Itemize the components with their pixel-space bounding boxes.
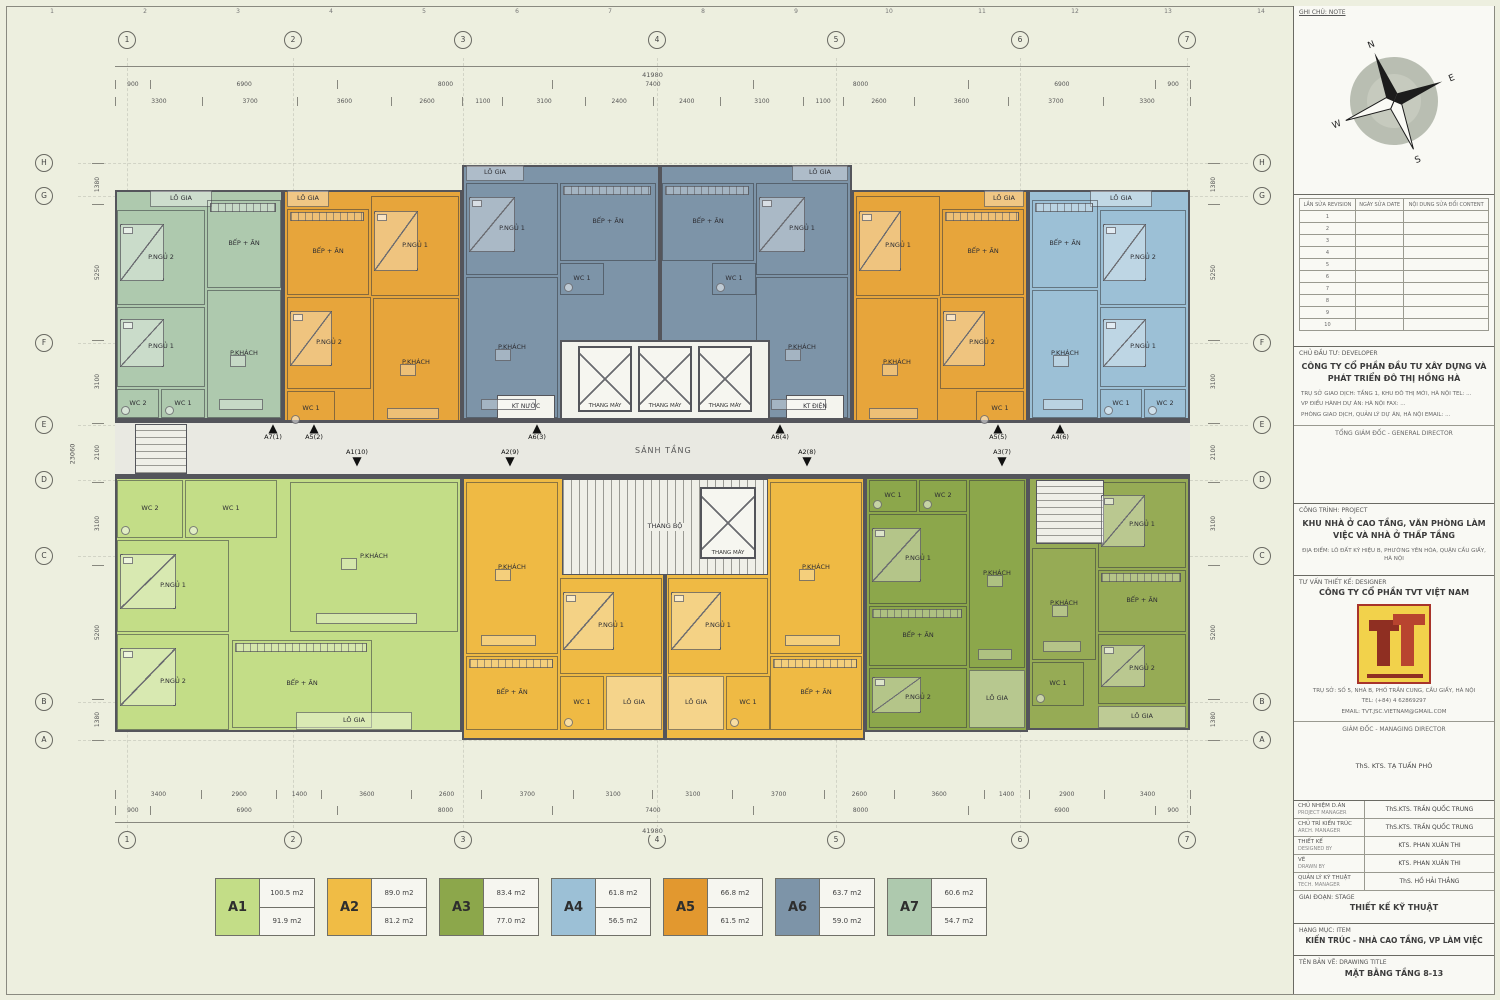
dimension-column-left: 1380525031002100310052001380 <box>92 163 104 741</box>
room-bed: P.NGỦ 2 <box>940 297 1024 389</box>
revision-row: 3 <box>1300 235 1489 247</box>
unit-entrance-arrow: ▲A7(1) <box>264 423 282 441</box>
dimension-segment: 3300 <box>1103 97 1190 106</box>
grid-bubble-column: 2 <box>284 31 302 49</box>
pillow-icon <box>472 200 482 207</box>
room-kitchen: BẾP + ĂN <box>869 606 967 666</box>
legend-area-top: 63.7 m2 <box>820 879 874 908</box>
grid-bubble-row: G <box>35 187 53 205</box>
ruler-number: 1 <box>50 8 54 16</box>
pillow-icon <box>875 530 885 537</box>
designer-label: TƯ VẤN THIẾT KẾ: DESIGNER <box>1294 576 1494 586</box>
sofa-icon <box>1043 641 1081 652</box>
room-label: BẾP + ĂN <box>692 218 723 225</box>
room-kitchen: BẾP + ĂN <box>287 209 369 295</box>
kitchen-counter-icon <box>665 186 749 195</box>
toilet-icon <box>121 406 130 415</box>
legend-item-A1: A1100.5 m291.9 m2 <box>215 878 315 936</box>
toilet-icon <box>564 718 573 727</box>
room-bed: P.NGỦ 2 <box>117 210 205 305</box>
legend-areas: 83.4 m277.0 m2 <box>484 879 538 935</box>
kitchen-counter-icon <box>290 212 364 221</box>
room-label: P.KHÁCH <box>802 564 830 571</box>
dimension-segment: 6900 <box>150 80 338 89</box>
electrical-shaft-label: KT ĐIỆN <box>803 404 827 411</box>
developer-block: CHỦ ĐẦU TƯ: DEVELOPER CÔNG TY CỔ PHẦN ĐẦ… <box>1294 347 1494 504</box>
room-label: P.KHÁCH <box>360 553 388 560</box>
revision-row: 8 <box>1300 295 1489 307</box>
room-label: P.NGỦ 2 <box>905 694 931 701</box>
room-label: P.KHÁCH <box>230 350 258 357</box>
dimension-segment-vertical: 3100 <box>1208 482 1220 565</box>
room-kitchen: BẾP + ĂN <box>1032 200 1098 288</box>
legend-area-top: 100.5 m2 <box>260 879 314 908</box>
dimension-segment: 3600 <box>297 97 390 106</box>
room-label: WC 1 <box>222 505 239 512</box>
dimension-segment-vertical: 5200 <box>1208 565 1220 699</box>
elevator-2: THANG MÁY <box>638 346 692 412</box>
pillow-icon <box>123 651 133 658</box>
room-label: WC 1 <box>991 405 1008 412</box>
ruler-number: 13 <box>1164 8 1172 16</box>
grid-bubble-column: 7 <box>1178 831 1196 849</box>
dimension-segment: 8000 <box>337 806 552 815</box>
legend-swatch: A5 <box>664 879 708 935</box>
toilet-icon <box>564 283 573 292</box>
dimension-segment-vertical: 3100 <box>1208 340 1220 423</box>
room-bed: P.NGỦ 1 <box>560 578 662 674</box>
room-loggia: LÔ GIA <box>466 165 524 181</box>
revision-row: 10 <box>1300 319 1489 331</box>
title-block: GHI CHÚ: NOTE N E S W LẦN SỬA REVISI <box>1293 6 1494 994</box>
room-loggia: LÔ GIA <box>969 670 1025 728</box>
dimension-row-segments-bottom: 90069008000740080006900900 <box>115 806 1191 815</box>
room-label: P.NGỦ 1 <box>148 343 174 350</box>
room-bed: P.NGỦ 1 <box>668 578 768 674</box>
grid-bubble-column: 1 <box>118 831 136 849</box>
pillow-icon <box>1104 647 1114 654</box>
kitchen-counter-icon <box>563 186 651 195</box>
elevator-label: THANG MÁY <box>708 403 743 409</box>
pillow-icon <box>123 227 133 234</box>
water-shaft-label: KT NƯỚC <box>512 404 540 411</box>
personnel-row: QUẢN LÝ KỸ THUẬTTECH. MANAGERThS. HỒ HẢI… <box>1294 873 1494 891</box>
dimension-segment: 900 <box>115 80 150 89</box>
room-wc: WC 1 <box>185 480 277 538</box>
grid-bubble-row: B <box>35 693 53 711</box>
dimension-segment-vertical: 1380 <box>1208 699 1220 740</box>
stage-label: GIAI ĐOẠN: STAGE <box>1294 891 1494 901</box>
drawing-title-block: TÊN BẢN VẼ: DRAWING TITLE MẶT BẰNG TẦNG … <box>1294 956 1494 994</box>
room-wc: WC 1 <box>1032 662 1084 706</box>
sofa-icon <box>869 408 918 419</box>
ruler-number: 9 <box>794 8 798 16</box>
room-label: P.NGỦ 1 <box>499 225 525 232</box>
room-label: LÔ GIA <box>484 169 506 176</box>
room-wc: WC 2 <box>1144 389 1186 418</box>
room-label: BẾP + ĂN <box>286 680 317 687</box>
room-bed: P.NGỦ 1 <box>466 183 558 275</box>
revision-row: 7 <box>1300 283 1489 295</box>
personnel-row: VẼDRAWN BYKTS. PHAN XUÂN THI <box>1294 855 1494 873</box>
room-sofa: P.KHÁCH <box>1032 548 1096 660</box>
designer-logo <box>1357 604 1431 684</box>
unit-code-label: A5(2) <box>305 433 323 441</box>
unit-entrance-arrow: ▲A5(5) <box>989 423 1007 441</box>
legend-area-bottom: 59.0 m2 <box>820 908 874 936</box>
ruler-number: 10 <box>885 8 893 16</box>
dimension-segment: 3100 <box>502 97 585 106</box>
room-label: WC 2 <box>141 505 158 512</box>
dimension-segment: 3100 <box>720 97 803 106</box>
corridor-label: SẢNH TẦNG <box>635 447 692 456</box>
room-label: P.NGỦ 1 <box>905 555 931 562</box>
elevator-label: THANG MÁY <box>711 550 746 556</box>
revision-header: NGÀY SỬA DATE <box>1355 199 1403 211</box>
legend-item-A7: A760.6 m254.7 m2 <box>887 878 987 936</box>
legend-area-bottom: 61.5 m2 <box>708 908 762 936</box>
room-bed: P.NGỦ 1 <box>1100 307 1186 387</box>
toilet-icon <box>923 500 932 509</box>
room-label: P.NGỦ 2 <box>969 339 995 346</box>
room-kitchen: BẾP + ĂN <box>560 183 656 261</box>
room-sofa: P.KHÁCH <box>466 482 558 654</box>
room-label: P.KHÁCH <box>402 359 430 366</box>
room-label: WC 1 <box>573 275 590 282</box>
room-label: P.KHÁCH <box>1051 350 1079 357</box>
kitchen-counter-icon <box>1035 203 1093 212</box>
managing-director-label: GIÁM ĐỐC - MANAGING DIRECTOR <box>1294 721 1494 735</box>
kitchen-counter-icon <box>872 609 962 618</box>
legend-areas: 61.8 m256.5 m2 <box>596 879 650 935</box>
unit-entrance-arrow: ▲A5(2) <box>305 423 323 441</box>
room-label: P.NGỦ 1 <box>160 582 186 589</box>
room-label: P.NGỦ 1 <box>1129 521 1155 528</box>
room-label: P.KHÁCH <box>788 344 816 351</box>
kitchen-counter-icon <box>1101 573 1181 582</box>
room-bed: P.NGỦ 1 <box>371 196 459 296</box>
room-loggia: LÔ GIA <box>984 190 1024 207</box>
room-label: P.NGỦ 1 <box>1130 343 1156 350</box>
room-label: WC 1 <box>1049 680 1066 687</box>
grid-line-horizontal <box>78 163 1248 164</box>
legend-area-bottom: 77.0 m2 <box>484 908 538 936</box>
legend-item-A2: A289.0 m281.2 m2 <box>327 878 427 936</box>
svg-text:E: E <box>1447 73 1456 85</box>
room-sofa: P.KHÁCH <box>290 482 458 632</box>
personnel-row: THIẾT KẾDESIGNED BYKTS. PHAN XUÂN THI <box>1294 837 1494 855</box>
kitchen-counter-icon <box>210 203 276 212</box>
dimension-segment: 1100 <box>803 97 843 106</box>
pillow-icon <box>862 214 872 221</box>
arrow-down-icon: ▼ <box>798 456 816 466</box>
room-label: WC 2 <box>934 492 951 499</box>
unit-entrance-arrow: A1(10)▼ <box>346 448 368 466</box>
toilet-icon <box>873 500 882 509</box>
room-label: BẾP + ĂN <box>312 248 343 255</box>
ruler-number: 5 <box>422 8 426 16</box>
designer-name: CÔNG TY CỔ PHẦN TVT VIỆT NAM <box>1294 586 1494 600</box>
kitchen-counter-icon <box>945 212 1019 221</box>
unit-entrance-arrow: ▲A6(3) <box>528 423 546 441</box>
room-wc: WC 1 <box>560 263 604 295</box>
dimension-segment: 900 <box>1155 80 1190 89</box>
toilet-icon <box>1104 406 1113 415</box>
dimension-segment: 900 <box>115 806 150 815</box>
room-kitchen: BẾP + ĂN <box>770 656 862 730</box>
grid-bubble-column: 5 <box>827 831 845 849</box>
toilet-icon <box>716 283 725 292</box>
ruler-number: 6 <box>515 8 519 16</box>
stair-label: THANG BỘ <box>646 523 685 530</box>
room-label: P.NGỦ 1 <box>402 242 428 249</box>
svg-text:N: N <box>1367 39 1377 51</box>
room-sofa: P.KHÁCH <box>770 482 862 654</box>
room-label: P.NGỦ 1 <box>789 225 815 232</box>
room-label: WC 1 <box>725 275 742 282</box>
legend-area-top: 89.0 m2 <box>372 879 426 908</box>
dimension-segment: 1400 <box>276 790 321 799</box>
grid-bubble-column: 6 <box>1011 31 1029 49</box>
dimension-row-fine-top: 3300370036002600110031002400240031001100… <box>115 97 1191 106</box>
legend-swatch: A3 <box>440 879 484 935</box>
item-label: HẠNG MỤC: ITEM <box>1294 924 1494 934</box>
pillow-icon <box>946 314 956 321</box>
designer-info-line: EMAIL: TVT.JSC.VIETNAM@GMAIL.COM <box>1294 707 1494 717</box>
toilet-icon <box>1036 694 1045 703</box>
pillow-icon <box>123 557 133 564</box>
room-sofa: P.KHÁCH <box>373 298 459 427</box>
legend-area-bottom: 54.7 m2 <box>932 908 986 936</box>
room-wc: WC 1 <box>1100 389 1142 418</box>
general-director-label: TỔNG GIÁM ĐỐC - GENERAL DIRECTOR <box>1294 425 1494 439</box>
designer-info-line: TEL: (+84) 4 62869297 <box>1294 696 1494 706</box>
dimension-row-segments-top: 90069008000740080006900900 <box>115 80 1191 89</box>
grid-bubble-column: 1 <box>118 31 136 49</box>
pillow-icon <box>762 200 772 207</box>
revision-row: 6 <box>1300 271 1489 283</box>
elevator-4: THANG MÁY <box>700 487 756 559</box>
ruler-number: 14 <box>1257 8 1265 16</box>
room-bed: P.NGỦ 1 <box>117 540 229 632</box>
room-label: LÔ GIA <box>685 699 707 706</box>
dimension-segment-vertical: 2100 <box>1208 423 1220 482</box>
room-bed: P.NGỦ 1 <box>117 307 205 387</box>
grid-bubble-row: C <box>35 547 53 565</box>
room-bed: P.NGỦ 1 <box>1098 482 1186 568</box>
unit-code-label: A6(4) <box>771 433 789 441</box>
room-label: P.NGỦ 2 <box>1129 665 1155 672</box>
legend-area-bottom: 56.5 m2 <box>596 908 650 936</box>
table-icon <box>341 558 357 570</box>
sofa-icon <box>1043 399 1083 410</box>
legend-swatch: A4 <box>552 879 596 935</box>
room-sofa: P.KHÁCH <box>969 480 1025 668</box>
kitchen-counter-icon <box>469 659 553 668</box>
dimension-segment: 7400 <box>552 80 752 89</box>
dimension-segment: 3700 <box>202 97 297 106</box>
grid-bubble-row: E <box>1253 416 1271 434</box>
grid-bubble-row: F <box>1253 334 1271 352</box>
dimension-segment: 1100 <box>462 97 502 106</box>
room-label: LÔ GIA <box>993 195 1015 202</box>
room-label: LÔ GIA <box>297 195 319 202</box>
room-wc: WC 1 <box>560 676 604 730</box>
room-wc: WC 2 <box>117 480 183 538</box>
toilet-icon <box>121 526 130 535</box>
room-wc: WC 2 <box>117 389 159 418</box>
dimension-segment: 6900 <box>150 806 338 815</box>
unit-entrance-arrow: A2(8)▼ <box>798 448 816 466</box>
room-wc: WC 1 <box>726 676 770 730</box>
room-label: P.NGỦ 1 <box>885 242 911 249</box>
room-label: P.NGỦ 1 <box>705 622 731 629</box>
legend-areas: 100.5 m291.9 m2 <box>260 879 314 935</box>
developer-name: CÔNG TY CỔ PHẦN ĐẦU TƯ XÂY DỰNG VÀ PHÁT … <box>1294 357 1494 389</box>
side-stair-left <box>135 424 187 474</box>
pillow-icon <box>1106 322 1116 329</box>
revision-row: 4 <box>1300 247 1489 259</box>
grid-bubble-row: D <box>35 471 53 489</box>
pillow-icon <box>1104 498 1114 505</box>
personnel-row: CHỦ NHIỆM D.ÁNPROJECT MANAGERThS.KTS. TR… <box>1294 801 1494 819</box>
revision-row: 5 <box>1300 259 1489 271</box>
pillow-icon <box>566 595 576 602</box>
dimension-segment: 2900 <box>201 790 277 799</box>
grid-line-horizontal <box>78 740 1248 741</box>
room-wc: WC 1 <box>712 263 756 295</box>
grid-bubble-row: D <box>1253 471 1271 489</box>
pillow-icon <box>377 214 387 221</box>
dimension-column-right: 1380525031002100310052001380 <box>1208 163 1220 741</box>
elevator-label: THANG MÁY <box>648 403 683 409</box>
room-label: WC 1 <box>884 492 901 499</box>
note-compass-block: GHI CHÚ: NOTE N E S W <box>1294 6 1494 195</box>
legend-area-bottom: 91.9 m2 <box>260 908 314 936</box>
dimension-segment: 3300 <box>115 97 202 106</box>
toilet-icon <box>165 406 174 415</box>
room-label: P.KHÁCH <box>498 344 526 351</box>
room-label: WC 2 <box>129 400 146 407</box>
ruler-number: 12 <box>1071 8 1079 16</box>
personnel-table: CHỦ NHIỆM D.ÁNPROJECT MANAGERThS.KTS. TR… <box>1294 801 1494 891</box>
room-sofa: P.KHÁCH <box>856 298 938 427</box>
room-bed: P.NGỦ 1 <box>856 196 940 296</box>
ruler-number: 11 <box>978 8 986 16</box>
arrow-up-icon: ▲ <box>989 423 1007 433</box>
room-kitchen: BẾP + ĂN <box>942 209 1024 295</box>
toilet-icon <box>291 415 300 424</box>
revision-header: LẦN SỬA REVISION <box>1300 199 1356 211</box>
item-value: KIẾN TRÚC - NHÀ CAO TẦNG, VP LÀM VIỆC <box>1294 934 1494 947</box>
arrow-up-icon: ▲ <box>1051 423 1069 433</box>
room-label: WC 1 <box>739 699 756 706</box>
dimension-segment: 1400 <box>984 790 1029 799</box>
revision-table: LẦN SỬA REVISIONNGÀY SỬA DATENỘI DUNG SỬ… <box>1299 198 1489 331</box>
room-label: P.KHÁCH <box>883 359 911 366</box>
dimension-segment: 2600 <box>824 790 893 799</box>
dimension-segment: 2600 <box>411 790 480 799</box>
legend-areas: 60.6 m254.7 m2 <box>932 879 986 935</box>
dimension-segment-vertical: 1380 <box>92 163 104 204</box>
arrow-down-icon: ▼ <box>501 456 519 466</box>
room-loggia: LÔ GIA <box>150 190 212 207</box>
room-label: WC 1 <box>1112 400 1129 407</box>
svg-text:W: W <box>1331 119 1343 132</box>
dimension-segment: 2400 <box>653 97 721 106</box>
sofa-icon <box>387 408 439 419</box>
legend-area-top: 61.8 m2 <box>596 879 650 908</box>
dimension-overall-left: 23060 <box>68 444 76 465</box>
toilet-icon <box>980 415 989 424</box>
room-label: P.KHÁCH <box>1050 600 1078 607</box>
unit-entrance-arrow: ▲A6(4) <box>771 423 789 441</box>
toilet-icon <box>730 718 739 727</box>
room-bed: P.NGỦ 2 <box>1098 634 1186 704</box>
project-name: KHU NHÀ Ở CAO TẦNG, VĂN PHÒNG LÀM VIỆC V… <box>1294 514 1494 546</box>
stage-block: GIAI ĐOẠN: STAGE THIẾT KẾ KỸ THUẬT <box>1294 891 1494 924</box>
dimension-segment-vertical: 3100 <box>92 340 104 423</box>
arrow-up-icon: ▲ <box>528 423 546 433</box>
project-block: CÔNG TRÌNH: PROJECT KHU NHÀ Ở CAO TẦNG, … <box>1294 504 1494 576</box>
elevator-1: THANG MÁY <box>578 346 632 412</box>
grid-bubble-row: A <box>35 731 53 749</box>
room-kitchen: BẾP + ĂN <box>466 656 558 730</box>
room-label: BẾP + ĂN <box>228 240 259 247</box>
room-label: BẾP + ĂN <box>902 632 933 639</box>
grid-bubble-column: 3 <box>454 31 472 49</box>
ruler-number: 2 <box>143 8 147 16</box>
stage-value: THIẾT KẾ KỸ THUẬT <box>1294 901 1494 915</box>
dimension-overall-top: 41980 <box>115 66 1190 75</box>
room-bed: P.NGỦ 1 <box>756 183 848 275</box>
elevator-label: THANG MÁY <box>588 403 623 409</box>
room-label: P.KHÁCH <box>498 564 526 571</box>
dimension-segment: 3600 <box>321 790 411 799</box>
room-loggia: LÔ GIA <box>1098 706 1186 728</box>
sofa-icon <box>316 613 417 624</box>
side-stair-right <box>1036 480 1104 544</box>
room-wc: WC 2 <box>919 480 967 512</box>
project-label: CÔNG TRÌNH: PROJECT <box>1294 504 1494 514</box>
room-kitchen: BẾP + ĂN <box>207 200 281 288</box>
sofa-icon <box>481 635 536 646</box>
drawing-title: MẶT BẰNG TẦNG 8-13 <box>1294 966 1494 982</box>
revision-block: LẦN SỬA REVISIONNGÀY SỬA DATENỘI DUNG SỬ… <box>1294 195 1494 347</box>
dimension-segment-vertical: 1380 <box>92 699 104 740</box>
grid-bubble-row: B <box>1253 693 1271 711</box>
dimension-segment-vertical: 3100 <box>92 482 104 565</box>
grid-bubble-row: F <box>35 334 53 352</box>
room-loggia: LÔ GIA <box>668 676 724 730</box>
dimension-segment: 900 <box>1155 806 1190 815</box>
room-label: P.NGỦ 2 <box>160 678 186 685</box>
room-label: LÔ GIA <box>1110 195 1132 202</box>
dimension-segment: 6900 <box>968 806 1156 815</box>
room-label: BẾP + ĂN <box>800 689 831 696</box>
sofa-icon <box>978 649 1012 660</box>
grid-bubble-column: 2 <box>284 831 302 849</box>
dimension-segment: 3600 <box>894 790 984 799</box>
developer-label: CHỦ ĐẦU TƯ: DEVELOPER <box>1294 347 1494 357</box>
grid-bubble-row: G <box>1253 187 1271 205</box>
kitchen-counter-icon <box>235 643 367 652</box>
pillow-icon <box>1106 227 1116 234</box>
dimension-segment: 2600 <box>843 97 915 106</box>
room-label: WC 1 <box>573 699 590 706</box>
legend-swatch: A2 <box>328 879 372 935</box>
dimension-segment: 3100 <box>652 790 732 799</box>
